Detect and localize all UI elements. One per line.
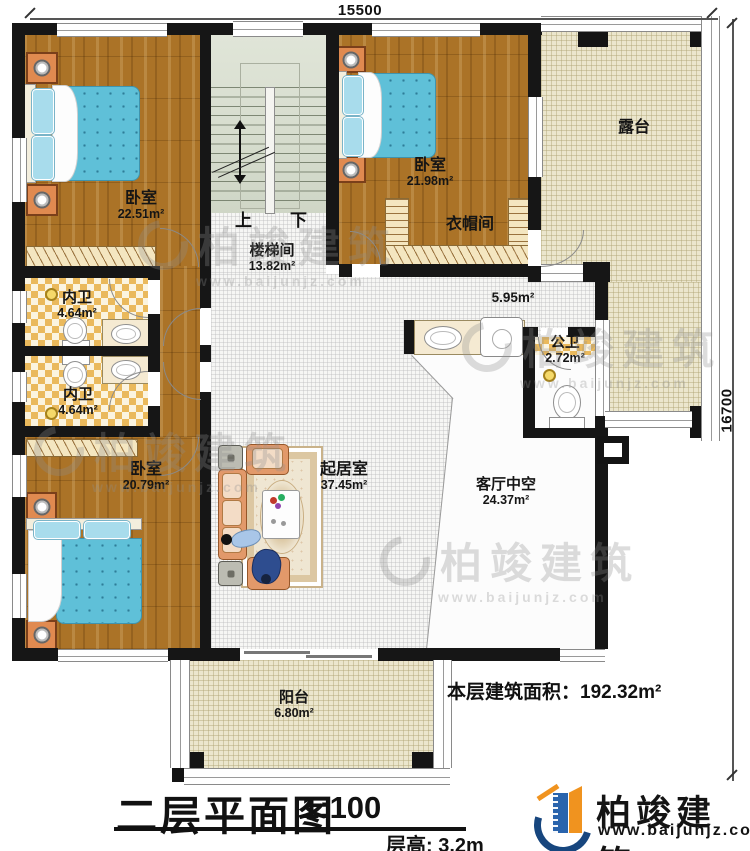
wardrobe-bedroom-tl [26, 246, 156, 268]
wall-hall-stub [200, 345, 211, 362]
dimension-right-value: 16700 [719, 381, 736, 441]
window-bedroom-tr-terrace [528, 97, 543, 177]
brand-logo-icon [534, 783, 592, 849]
room-label-void: 客厅中空 24.37m² [476, 477, 536, 507]
wall-bath-public-top-1 [523, 327, 538, 337]
wall-bath-public-left [523, 337, 535, 428]
bed-pillow [343, 76, 363, 115]
wall-terrace-divider-2 [528, 177, 541, 230]
sofa-cushion [222, 500, 242, 526]
nightstand [26, 184, 58, 216]
bed-pillow [32, 89, 54, 134]
floor-wash-corridor [541, 282, 595, 328]
stair-direction-line [239, 128, 241, 176]
table-cup [281, 521, 286, 526]
sink [424, 326, 462, 350]
wall-bath-public-bottom [523, 428, 608, 438]
window-bedroom-tl-left [12, 138, 27, 202]
stair-down-label: 下 [290, 206, 307, 231]
wall-stair-right [326, 35, 339, 265]
side-table [218, 561, 243, 586]
window-bedroom-bl-left-2 [12, 574, 27, 618]
room-label-wash-area: 5.95m² [492, 291, 535, 306]
bed-sheet [52, 85, 78, 182]
balcony-sliding-door-leaf-1 [244, 651, 310, 654]
nightstand [26, 52, 58, 84]
room-label-bath-inner-top: 内卫 4.64m² [57, 290, 97, 320]
logo-building-blue [553, 793, 568, 833]
nightstand [26, 620, 57, 650]
room-label-stairwell: 楼梯间 13.82m² [249, 243, 296, 273]
wall-corridor-corner [583, 262, 610, 282]
wall-right-1 [595, 282, 608, 320]
wall-stair-left [200, 35, 211, 308]
window-bedroom-tr-top [372, 23, 480, 37]
terrace-door-gap [528, 230, 541, 266]
table-flower-purple [275, 503, 281, 509]
door-gap-bath-bottom [148, 372, 160, 406]
room-label-balcony: 阳台 6.80m² [274, 690, 314, 720]
sink [111, 324, 141, 344]
table-cup [271, 519, 276, 524]
room-label-bath-public: 公卫 2.72m² [545, 336, 585, 366]
toilet-bowl [553, 385, 581, 420]
wall-bottom-3 [378, 648, 560, 661]
washing-machine [480, 317, 523, 357]
armchair-cushion [252, 448, 283, 469]
nightstand [336, 156, 366, 183]
nightstand [336, 46, 366, 73]
railing-balcony-left [170, 660, 190, 768]
floor-terrace-lower [608, 282, 701, 427]
floor-plan-page: 卧室 22.51m² 楼梯间 13.82m² 上 下 卧室 21.98m² 衣帽… [0, 0, 750, 851]
floor-drain [45, 407, 58, 420]
room-label-living: 起居室 37.45m² [320, 461, 368, 492]
room-label-terrace: 露台 [618, 119, 650, 137]
wall-bath-divider [24, 346, 148, 356]
window-bedroom-bl-bottom [58, 649, 168, 662]
bed-sheet [28, 530, 62, 622]
room-label-bedroom-tr: 卧室 21.98m² [407, 157, 454, 188]
room-label-bedroom-bl: 卧室 20.79m² [123, 461, 170, 492]
total-floor-area-label: 本层建筑面积：192.32m² [447, 677, 661, 704]
window-bedroom-bl-left-1 [12, 455, 27, 497]
stair-arrow-up-icon [234, 120, 246, 129]
person-head [261, 574, 271, 584]
stair-up-label: 上 [235, 206, 252, 231]
wall-hall-lower [200, 392, 211, 649]
table-flower-green [278, 494, 285, 501]
logo-building-orange [569, 786, 582, 833]
bed-pillow [32, 136, 54, 180]
floor-drain [543, 369, 556, 382]
balcony-sliding-door-leaf-2 [306, 655, 372, 658]
wall-left [12, 23, 25, 660]
wall-bottom-1 [12, 648, 58, 661]
stair-arrow-down-icon [234, 175, 246, 184]
room-label-cloakroom: 衣帽间 [446, 216, 494, 234]
plan-scale: 1:100 [302, 790, 381, 826]
toilet-bowl [63, 361, 87, 388]
wardrobe-bedroom-bl [26, 439, 138, 457]
railing-terrace-bottom [605, 411, 692, 428]
flue-box [597, 436, 629, 464]
dimension-top-value: 15500 [330, 2, 390, 19]
stair-stringer [265, 87, 275, 214]
window-bath-top-left [12, 291, 27, 323]
window-bath-bottom-left [12, 372, 27, 402]
wall-bath-bottom [12, 426, 160, 437]
bed-pillow [343, 117, 363, 156]
dimension-tick [24, 7, 35, 18]
brand-url: www.baijunjz.com [598, 822, 750, 840]
floor-height-label: 层高: 3.2m [386, 829, 484, 851]
door-gap-bedroom-tr [352, 264, 380, 277]
window-living-bottom [560, 649, 605, 662]
room-label-bedroom-tl: 卧室 22.51m² [118, 190, 165, 221]
cloakroom-closet-bottom [385, 245, 532, 265]
toilet-bowl [63, 317, 87, 344]
window-bedroom-tl-top [57, 23, 167, 37]
wall-bedroom-tl-bottom [12, 266, 160, 278]
window-stairwell-top [233, 21, 303, 37]
bed-pillow [34, 521, 80, 539]
door-gap-bath-top [148, 280, 160, 314]
floor-drain [45, 288, 58, 301]
sofa-cushion [222, 473, 242, 499]
wall-counter-stub [404, 320, 414, 354]
window-bath-public-terrace [595, 320, 610, 416]
railing-terrace-right [701, 16, 720, 441]
side-table [218, 445, 243, 470]
wall-terrace-divider-1 [528, 23, 541, 97]
bed-blanket [56, 538, 142, 624]
floor-hallway [160, 266, 200, 437]
person-head [221, 534, 232, 545]
window-corridor-terrace [541, 264, 583, 282]
bed-pillow [84, 521, 130, 539]
brand-name: 柏竣建筑 [596, 785, 750, 851]
room-label-bath-inner-bottom: 内卫 4.64m² [58, 387, 98, 417]
